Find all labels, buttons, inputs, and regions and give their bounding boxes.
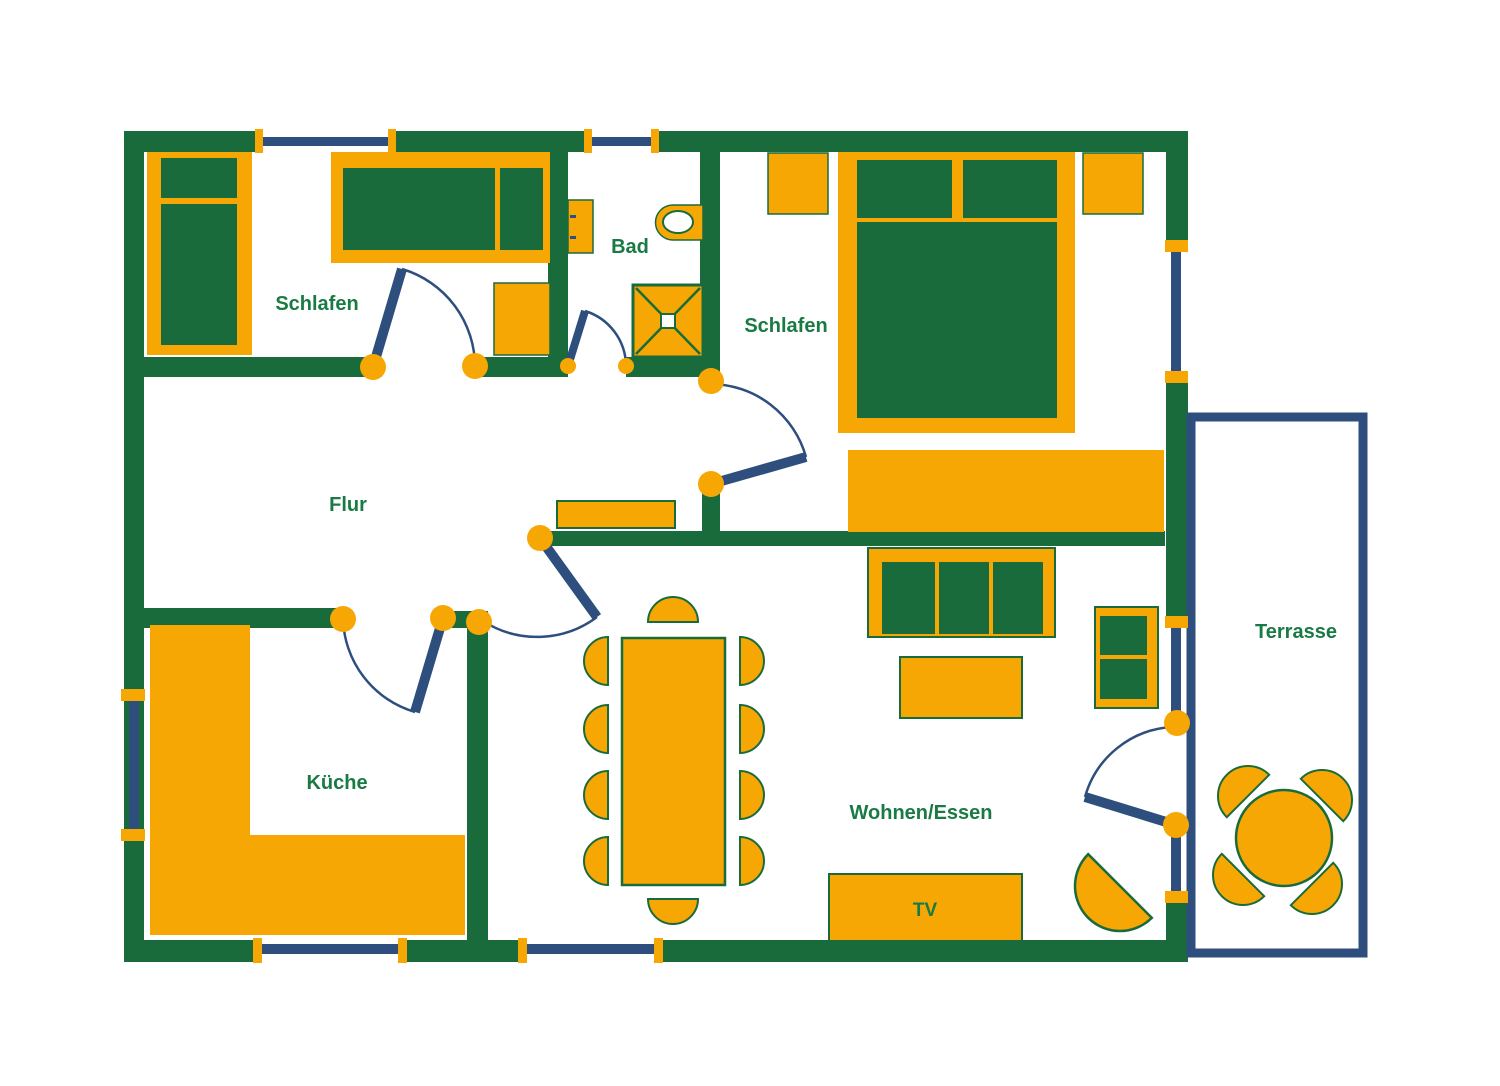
bed-single-mattress	[343, 168, 495, 250]
sofa-divider-1	[935, 562, 939, 634]
door-flur-wohnen-leaf	[540, 538, 597, 617]
window-top-bad-cap-1	[584, 129, 592, 153]
door-kueche-hinge-2	[430, 605, 456, 631]
wall-kueche-right	[467, 611, 488, 940]
door-kueche-hinge-1	[330, 606, 356, 632]
nightstand-schlafen1	[494, 283, 550, 355]
wardrobe-door-top	[161, 158, 237, 198]
door-schlafen2-hinge-1	[698, 368, 724, 394]
door-schlafen1-hinge-2	[462, 353, 488, 379]
door-bad-hinge-2	[618, 358, 634, 374]
wall-schlafen1-bottom-1	[144, 357, 373, 377]
door-schlafen2-hinge-2	[698, 471, 724, 497]
dining-chair-left-3	[584, 771, 608, 819]
coffee-table	[900, 657, 1022, 718]
window-bottom-wohnen-cap-2	[654, 938, 663, 963]
shower-drain	[661, 314, 675, 328]
sofa-divider-2	[989, 562, 993, 634]
window-left-kueche-cap-1	[121, 689, 145, 701]
wardrobe-door-bottom	[161, 204, 237, 345]
dining-chair-left-2	[584, 705, 608, 753]
window-top-bad-cap-2	[651, 129, 659, 153]
window-top-schlafen1-cap-2	[388, 129, 396, 153]
bed-double-mattress	[857, 222, 1057, 418]
window-bottom-kueche-cap-2	[398, 938, 407, 963]
dining-chair-right-2	[740, 705, 764, 753]
bath-sink-handle-2	[570, 236, 576, 239]
dining-chair-right-3	[740, 771, 764, 819]
wall-bad-bottom	[626, 357, 700, 377]
dining-chair-right-1	[740, 637, 764, 685]
window-right-schlafen2-glass	[1171, 252, 1181, 371]
plant	[1056, 854, 1151, 949]
nightstand-schlafen2-left	[768, 153, 828, 214]
door-kueche-swing-arc	[343, 618, 415, 712]
wall-right-2	[1166, 382, 1188, 616]
wall-top-2	[396, 131, 584, 152]
dining-chair-right-4	[740, 837, 764, 885]
wall-bottom-2	[404, 940, 520, 962]
window-right-wohnen-lower-cap-1	[1165, 891, 1188, 903]
sofa-seat	[882, 562, 1043, 634]
door-terrasse-leaf	[1085, 797, 1176, 825]
bed-double-pillow-right	[963, 160, 1057, 218]
room-label-schlafen-1: Schlafen	[275, 293, 358, 315]
door-schlafen1-hinge-1	[360, 354, 386, 380]
door-schlafen1-swing-arc	[402, 269, 475, 367]
room-label-flur: Flur	[329, 494, 367, 516]
door-flur-wohnen-swing-arc	[483, 617, 597, 637]
door-kueche-leaf	[415, 618, 443, 712]
door-schlafen2-leaf	[711, 457, 806, 484]
floor-plan-canvas: SchlafenBadSchlafenFlurKücheWohnen/Essen…	[0, 0, 1500, 1086]
window-bottom-kueche-cap-1	[253, 938, 262, 963]
door-terrasse-hinge-1	[1164, 710, 1190, 736]
door-flur-wohnen-hinge-2	[466, 609, 492, 635]
door-bad-hinge-1	[560, 358, 576, 374]
door-schlafen1-leaf	[373, 269, 402, 367]
wall-schlafen1-bottom-2	[475, 357, 568, 377]
wall-top-3	[659, 131, 1188, 152]
window-top-bad-glass	[592, 137, 651, 146]
bath-sink-handle-1	[570, 215, 576, 218]
wall-bath-left	[548, 152, 568, 377]
sideboard-flur	[557, 501, 675, 528]
floor-plan: SchlafenBadSchlafenFlurKücheWohnen/Essen…	[0, 0, 1500, 1086]
wall-bottom-1	[124, 940, 256, 962]
window-bottom-wohnen-glass	[527, 944, 654, 954]
nightstand-schlafen2-right	[1083, 153, 1143, 214]
terrace-table	[1236, 790, 1332, 886]
bed-single-pillow	[500, 168, 543, 250]
bath-sink	[568, 200, 593, 253]
door-terrasse-hinge-2	[1163, 812, 1189, 838]
window-top-schlafen1-cap-1	[255, 129, 263, 153]
kitchen-counter-bottom	[150, 835, 465, 935]
dining-chair-bottom	[648, 899, 698, 924]
room-label-wohnen-essen: Wohnen/Essen	[850, 802, 993, 824]
window-left-kueche-cap-2	[121, 829, 145, 841]
window-right-schlafen2-cap-2	[1165, 371, 1188, 383]
window-left-kueche-glass	[129, 701, 139, 829]
room-label-bad: Bad	[611, 236, 649, 258]
room-label-kueche: Küche	[306, 772, 367, 794]
door-schlafen2-swing-arc	[711, 384, 806, 457]
door-terrasse-swing-arc	[1085, 727, 1172, 797]
room-label-schlafen-2: Schlafen	[744, 315, 827, 337]
armchair-divider	[1100, 655, 1147, 659]
room-label-terrasse: Terrasse	[1255, 621, 1337, 643]
window-right-wohnen-lower-glass	[1171, 833, 1181, 891]
wall-flur-wohnen	[545, 531, 1165, 546]
dining-chair-left-4	[584, 837, 608, 885]
bed-double-pillow-left	[857, 160, 952, 218]
toilet-bowl	[663, 211, 693, 233]
wall-right-1	[1166, 131, 1188, 240]
window-right-wohnen-upper-cap-1	[1165, 616, 1188, 628]
window-right-wohnen-upper-glass	[1171, 628, 1181, 716]
window-right-schlafen2-cap-1	[1165, 240, 1188, 252]
dining-chair-top	[648, 597, 698, 622]
window-top-schlafen1-glass	[263, 137, 388, 146]
door-flur-wohnen-hinge-1	[527, 525, 553, 551]
window-bottom-wohnen-cap-1	[518, 938, 527, 963]
door-bad-swing-arc	[585, 311, 626, 366]
dining-table	[622, 638, 725, 885]
door-bad-leaf	[568, 311, 585, 366]
wall-bottom-3	[661, 940, 1188, 962]
room-label-tv: TV	[913, 900, 938, 921]
dining-chair-left-1	[584, 637, 608, 685]
dresser-schlafen2	[848, 450, 1164, 532]
window-bottom-kueche-glass	[262, 944, 398, 954]
